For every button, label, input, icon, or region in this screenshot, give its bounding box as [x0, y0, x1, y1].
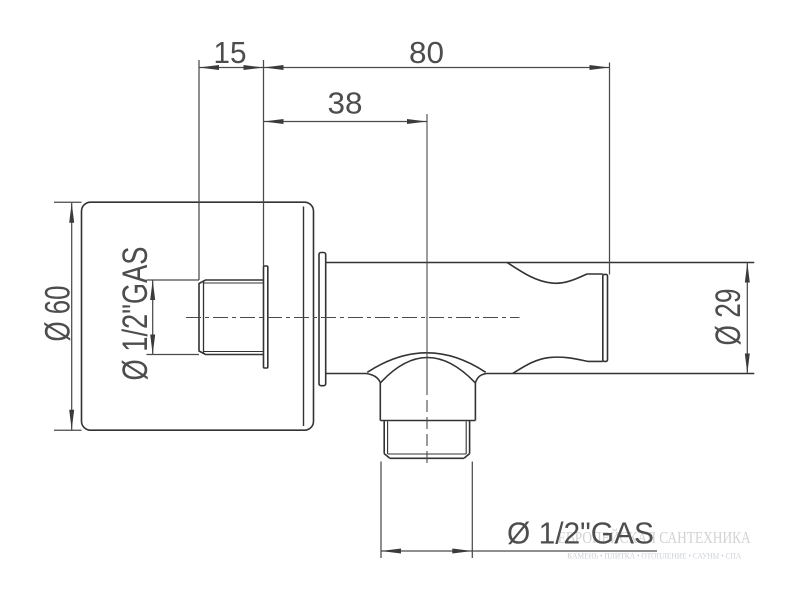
- svg-text:КАМЕНЬ • ПЛИТКА • ОТОПЛЕНИЕ •: КАМЕНЬ • ПЛИТКА • ОТОПЛЕНИЕ • САУНЫ • СП…: [567, 550, 742, 560]
- svg-text:Ø 60: Ø 60: [39, 286, 78, 342]
- svg-text:38: 38: [328, 86, 363, 121]
- svg-text:Ø 1/2"GAS: Ø 1/2"GAS: [116, 247, 155, 381]
- svg-text:80: 80: [409, 35, 444, 70]
- svg-text:15: 15: [214, 35, 247, 70]
- svg-text:Ø 1/2"GAS: Ø 1/2"GAS: [507, 516, 654, 551]
- svg-text:Ø 29: Ø 29: [709, 289, 748, 346]
